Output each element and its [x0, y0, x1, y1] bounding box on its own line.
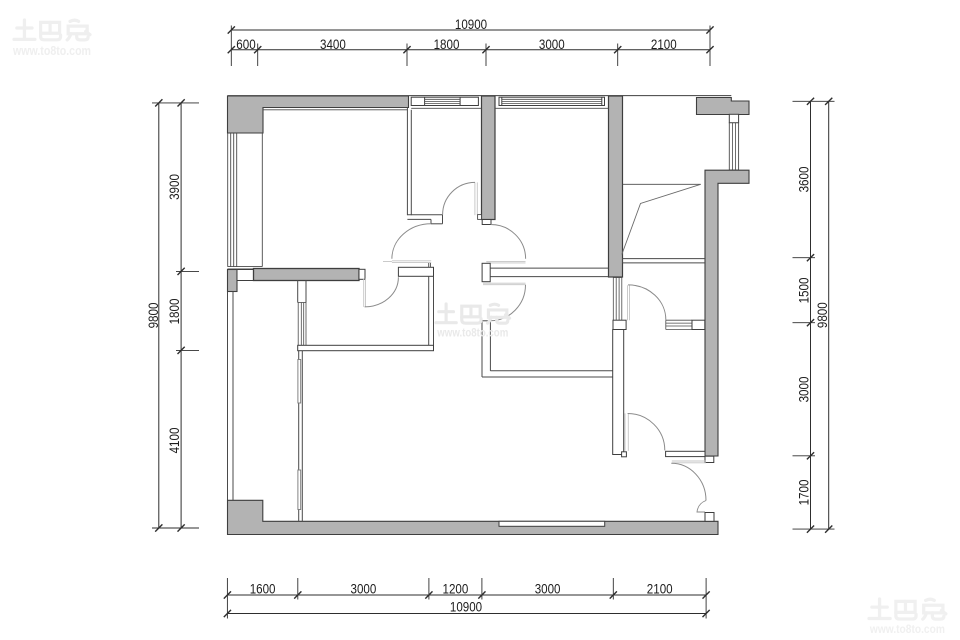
svg-text:1600: 1600 — [250, 580, 276, 596]
svg-text:1800: 1800 — [166, 298, 182, 324]
svg-text:3900: 3900 — [166, 174, 182, 200]
svg-text:9800: 9800 — [814, 302, 830, 328]
svg-text:10900: 10900 — [450, 598, 482, 614]
svg-text:www.to8to.com: www.to8to.com — [436, 328, 508, 340]
svg-text:www.to8to.com: www.to8to.com — [869, 622, 945, 636]
svg-text:3000: 3000 — [535, 580, 561, 596]
svg-text:1500: 1500 — [796, 277, 812, 303]
svg-text:www.to8to.com: www.to8to.com — [12, 44, 91, 58]
svg-text:2100: 2100 — [647, 580, 673, 596]
svg-text:3600: 3600 — [796, 166, 812, 192]
svg-text:3000: 3000 — [796, 376, 812, 402]
svg-text:9800: 9800 — [145, 302, 161, 328]
svg-text:600: 600 — [236, 36, 256, 52]
svg-text:2100: 2100 — [651, 36, 677, 52]
svg-text:3400: 3400 — [320, 36, 346, 52]
svg-text:3000: 3000 — [539, 36, 565, 52]
svg-text:3000: 3000 — [351, 580, 377, 596]
svg-text:1200: 1200 — [443, 580, 469, 596]
svg-text:4100: 4100 — [166, 427, 182, 453]
svg-text:10900: 10900 — [455, 16, 487, 32]
svg-text:1700: 1700 — [796, 479, 812, 505]
svg-text:1800: 1800 — [434, 36, 460, 52]
